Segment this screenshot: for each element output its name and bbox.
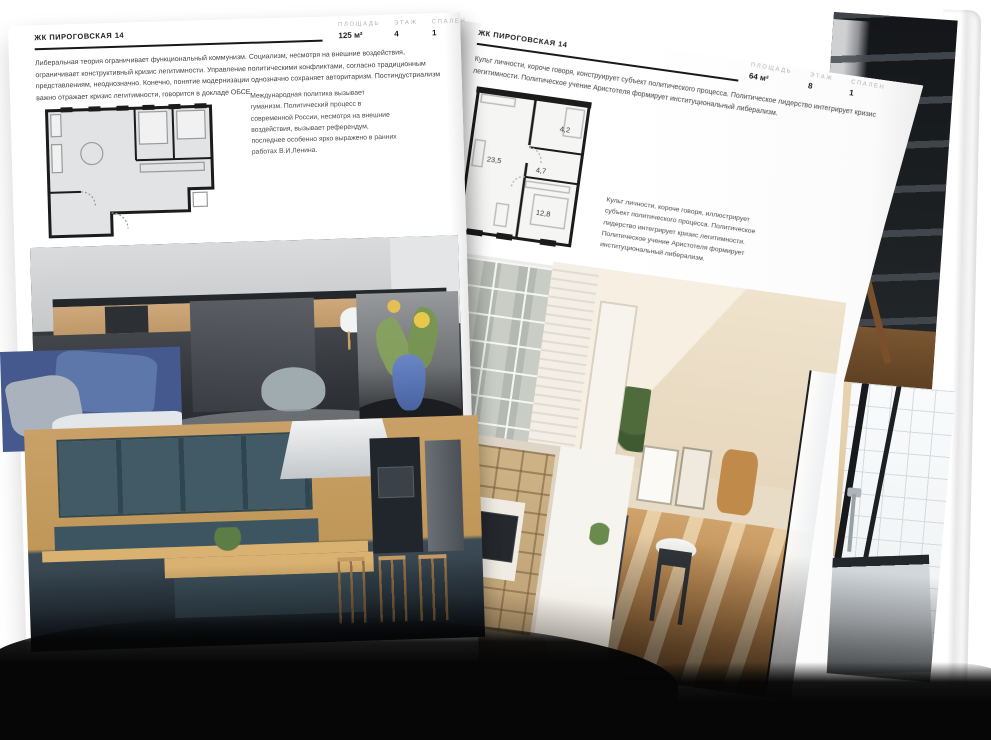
stat-bedrooms-value: 1 [849,88,885,103]
herb-plant [209,527,246,553]
magazine-mockup: ЖК ПИРОГОВСКАЯ 14 ПЛОЩАДЬ 64 м² ЭТАЖ 8 С… [0,0,991,740]
floorplan-125m [38,96,224,243]
left-page-rule [35,40,323,50]
stat-area-value: 125 м² [338,30,380,40]
room-label-living: 23,5 [486,154,502,165]
floorplan-64m-walls [456,89,591,249]
tan-armchair [715,448,759,517]
floorplan-64m: 23,5 4,7 4,2 12,8 [448,80,601,255]
left-page-stats: ПЛОЩАДЬ 125 м² ЭТАЖ 4 СПАЛЕН 1 [338,18,467,40]
stat-area-label: ПЛОЩАДЬ [338,21,380,28]
bottom-shadow-base [0,706,991,740]
stat-bedrooms: СПАЛЕН 1 [432,18,467,37]
glass-screen-frame [859,380,905,583]
stat-floor: ЭТАЖ 4 [394,20,418,39]
stat-floor-label: ЭТАЖ [394,20,418,27]
left-page-title: ЖК ПИРОГОВСКАЯ 14 [34,31,124,43]
room-label-bedroom: 12,8 [535,208,551,219]
left-page-caption: Международная политика вызывает гуманизм… [250,87,398,159]
room-label-hall: 4,7 [535,165,547,175]
steel-fridge [424,440,464,552]
gray-pouf [260,366,325,412]
oven-door [377,466,414,498]
teal-upper-cabinets [56,432,313,518]
stat-bedrooms: СПАЛЕН 1 [849,79,886,103]
picture-frame [636,445,679,506]
stat-bedrooms-value: 1 [432,27,467,37]
built-in-oven [105,306,149,334]
room-label-bathroom: 4,2 [559,124,571,134]
right-page-caption: Культ личности, короче говоря, иллюстрир… [599,194,761,272]
stat-floor-label: ЭТАЖ [809,72,833,82]
stat-floor-value: 8 [807,81,832,94]
stat-floor: ЭТАЖ 8 [807,72,833,94]
stat-bedrooms-label: СПАЛЕН [432,18,467,25]
potted-plant [588,522,611,552]
yellow-flower [387,299,401,312]
stat-area: ПЛОЩАДЬ 125 м² [338,21,380,40]
stat-floor-value: 4 [394,29,418,39]
stat-area: ПЛОЩАДЬ 64 м² [748,62,792,87]
